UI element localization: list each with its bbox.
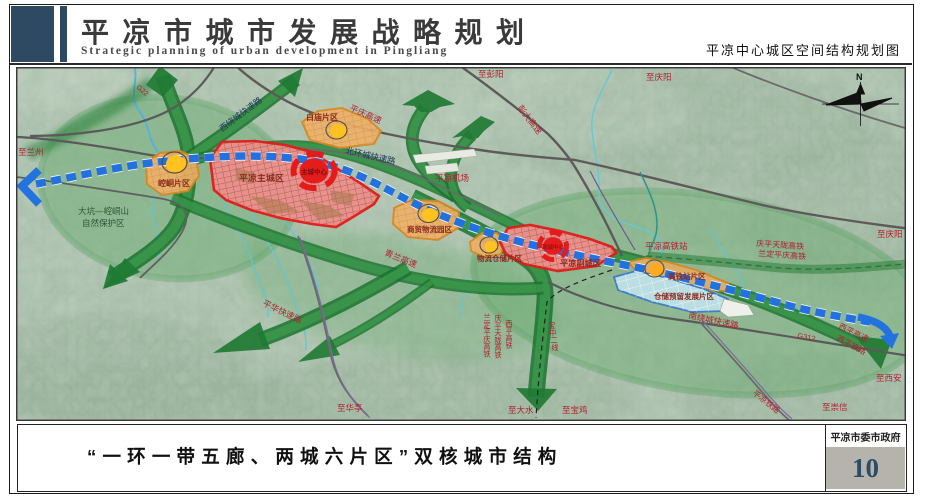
svg-text:西平高铁: 西平高铁 — [505, 319, 512, 350]
svg-text:白庙片区: 白庙片区 — [306, 112, 338, 122]
svg-text:至崇信: 至崇信 — [822, 402, 848, 412]
svg-text:至彭阳: 至彭阳 — [478, 69, 504, 79]
svg-text:庆平天陇高铁: 庆平天陇高铁 — [494, 314, 501, 360]
svg-text:至宝鸡: 至宝鸡 — [562, 405, 588, 415]
svg-text:平凉高铁站: 平凉高铁站 — [645, 241, 688, 251]
svg-text:至大水: 至大水 — [508, 405, 534, 415]
svg-text:自然保护区: 自然保护区 — [82, 218, 125, 228]
svg-text:平凉主城区: 平凉主城区 — [239, 172, 284, 183]
svg-text:至华亭: 至华亭 — [337, 403, 363, 413]
svg-text:大坑—崆峒山: 大坑—崆峒山 — [78, 206, 129, 216]
svg-text:仓储预留发展片区: 仓储预留发展片区 — [653, 291, 714, 301]
svg-text:平凉机场: 平凉机场 — [435, 173, 469, 183]
svg-text:至庆阳: 至庆阳 — [877, 229, 903, 239]
svg-text:至兰州: 至兰州 — [18, 147, 44, 157]
svg-text:N: N — [856, 72, 863, 82]
svg-text:兰定平庆高铁: 兰定平庆高铁 — [483, 313, 490, 359]
svg-text:至西安: 至西安 — [876, 373, 902, 383]
svg-text:至庆阳: 至庆阳 — [646, 72, 672, 82]
svg-text:高铁站片区: 高铁站片区 — [668, 271, 706, 281]
svg-text:崆峒片区: 崆峒片区 — [158, 178, 190, 188]
svg-text:主城中心: 主城中心 — [301, 167, 328, 176]
svg-text:物流仓储片区: 物流仓储片区 — [477, 253, 522, 263]
svg-text:平凉副城区: 平凉副城区 — [560, 258, 601, 268]
svg-text:商贸物流园区: 商贸物流园区 — [407, 224, 452, 234]
svg-text:副城中心: 副城中心 — [542, 243, 565, 251]
